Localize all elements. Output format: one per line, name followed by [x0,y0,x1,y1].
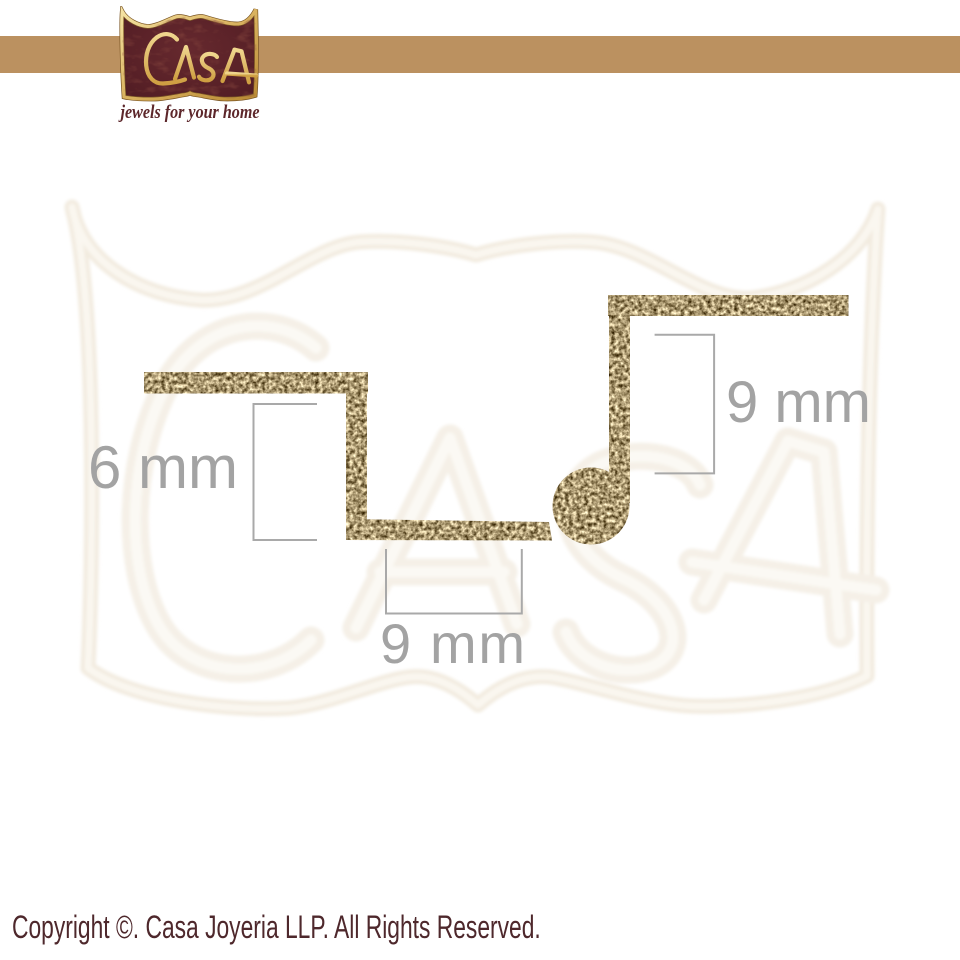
svg-text:9 mm: 9 mm [380,612,525,675]
svg-text:jewels for your home: jewels for your home [118,102,260,123]
svg-text:6 mm: 6 mm [88,434,238,501]
svg-text:9 mm: 9 mm [726,370,871,435]
